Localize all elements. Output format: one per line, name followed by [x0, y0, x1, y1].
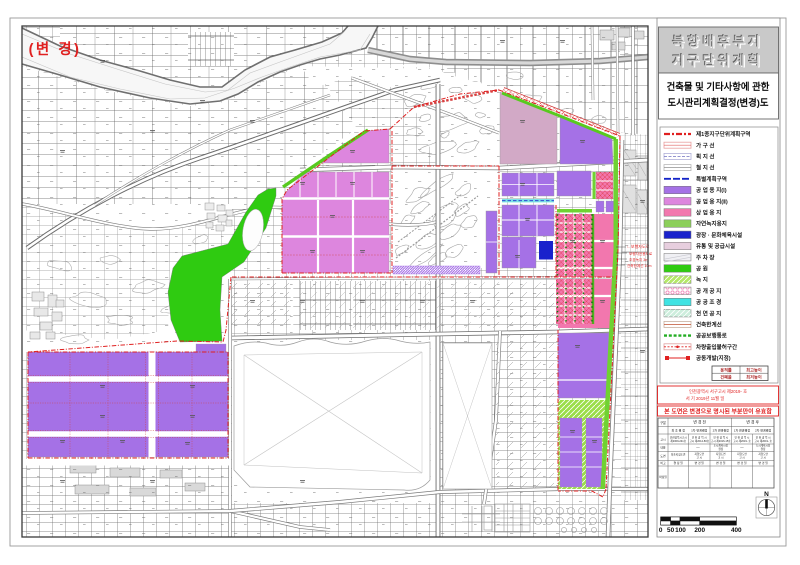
svg-text:비고: 비고	[660, 461, 666, 465]
svg-text:공 개 공 지: 공 개 공 지	[696, 287, 721, 295]
svg-text:인 천 광 역 시: 인 천 광 역 시	[735, 436, 750, 440]
svg-text:2차 변경결정: 2차 변경결정	[713, 427, 730, 432]
svg-text:최저높이: 최저높이	[746, 374, 762, 381]
svg-text:결정: 결정	[718, 447, 723, 451]
svg-text:지구단위계획: 지구단위계획	[672, 53, 763, 68]
svg-text:건폐율: 건폐율	[720, 374, 732, 381]
svg-text:고 시: 고 시	[739, 456, 745, 460]
svg-text:결정: 결정	[761, 447, 766, 451]
svg-text:건축물 및 기타사항에 관한: 건축물 및 기타사항에 관한	[667, 81, 770, 92]
svg-text:확정일: 확정일	[659, 475, 667, 479]
svg-text:변 경 일: 변 경 일	[737, 461, 747, 465]
svg-text:공 업 용 지(Ⅱ): 공 업 용 지(Ⅱ)	[696, 197, 728, 205]
svg-text:보행자전용도로: 보행자전용도로	[629, 251, 653, 256]
svg-text:공 원: 공 원	[696, 265, 708, 273]
svg-text:지형도면: 지형도면	[694, 452, 704, 456]
svg-text:50: 50	[667, 527, 675, 534]
svg-text:고시: 고시	[660, 438, 666, 442]
svg-text:차량출입불허구간: 차량출입불허구간	[696, 343, 738, 351]
svg-text:제2009-241호: 제2009-241호	[670, 439, 686, 443]
svg-text:용적률: 용적률	[720, 367, 732, 374]
svg-text:제1종지구단위계획구역: 제1종지구단위계획구역	[696, 130, 751, 138]
svg-text:서 기 2019년 11월 일: 서 기 2019년 11월 일	[686, 395, 725, 402]
svg-text:고 시: 고 시	[718, 456, 724, 460]
svg-text:최 초 결 정: 최 초 결 정	[671, 427, 685, 432]
svg-text:본 도면은 변경으로 명시된 부분만이 유효함: 본 도면은 변경으로 명시된 부분만이 유효함	[664, 407, 772, 415]
svg-text:변 경 전: 변 경 전	[693, 420, 706, 425]
svg-text:고시 제2016-15호: 고시 제2016-15호	[711, 439, 731, 443]
svg-text:공공보행통로: 공공보행통로	[696, 332, 727, 340]
svg-text:변 경 일: 변 경 일	[759, 461, 769, 465]
svg-text:∟보행자도로: ∟보행자도로	[627, 243, 650, 249]
svg-text:녹 지: 녹 지	[696, 276, 708, 284]
svg-text:변 경 일: 변 경 일	[716, 461, 726, 465]
svg-text:획 지 선: 획 지 선	[696, 153, 715, 161]
svg-text:고시 제2019- 호: 고시 제2019- 호	[754, 439, 772, 443]
svg-text:상 업 용 지: 상 업 용 지	[696, 209, 721, 217]
svg-text:인천광역시 서구고시 제2019- 호: 인천광역시 서구고시 제2019- 호	[689, 388, 747, 395]
svg-text:(변 경): (변 경)	[29, 40, 82, 58]
svg-text:200: 200	[694, 527, 705, 534]
svg-text:고시 제2014-83호: 고시 제2014-83호	[689, 439, 709, 443]
svg-text:도면: 도면	[660, 454, 666, 458]
svg-text:결 정 일: 결 정 일	[674, 461, 684, 465]
svg-text:인 천 광 역 시: 인 천 광 역 시	[756, 436, 771, 440]
svg-text:최고높이: 최고높이	[746, 367, 762, 374]
svg-text:내용: 내용	[660, 446, 666, 450]
svg-text:1차 변경결정: 1차 변경결정	[734, 427, 751, 432]
svg-text:북항배후부지: 북항배후부지	[672, 34, 763, 49]
svg-text:유통 및 공급시설: 유통 및 공급시설	[696, 242, 735, 250]
svg-text:인 천 광 역 시: 인 천 광 역 시	[713, 436, 728, 440]
svg-text:도시계획시설: 도시계획시설	[756, 444, 771, 448]
svg-text:도시관리계획결정(변경)도: 도시관리계획결정(변경)도	[667, 97, 768, 108]
svg-text:구분: 구분	[660, 420, 666, 425]
svg-text:변 경 일: 변 경 일	[695, 461, 705, 465]
svg-text:조경녹지 3m: 조경녹지 3m	[629, 257, 648, 262]
svg-text:도시계획시설: 도시계획시설	[714, 444, 729, 448]
svg-text:인천광역시고시: 인천광역시고시	[670, 436, 687, 440]
svg-text:고 시: 고 시	[760, 456, 766, 460]
svg-text:최초지형도면: 최초지형도면	[671, 453, 686, 457]
svg-text:광장 · 문화체육시설: 광장 · 문화체육시설	[696, 231, 742, 239]
svg-text:1차 변경결정: 1차 변경결정	[691, 427, 708, 432]
svg-text:지형도면: 지형도면	[737, 452, 747, 456]
svg-text:주 차 장: 주 차 장	[696, 253, 715, 261]
svg-text:고 시: 고 시	[697, 456, 703, 460]
svg-text:2차 변경결정: 2차 변경결정	[755, 427, 772, 432]
svg-text:자연녹지용지: 자연녹지용지	[696, 220, 727, 228]
svg-text:공동개발(지정): 공동개발(지정)	[696, 354, 731, 362]
svg-text:고시 제2019- 호: 고시 제2019- 호	[733, 439, 751, 443]
svg-text:0: 0	[659, 527, 663, 534]
svg-text:철 지 선: 철 지 선	[696, 164, 715, 172]
svg-text:400: 400	[731, 527, 742, 534]
svg-text:N: N	[764, 491, 769, 498]
svg-text:공 업 용 지(Ⅰ): 공 업 용 지(Ⅰ)	[696, 186, 727, 194]
svg-text:변 경 후: 변 경 후	[746, 420, 759, 425]
svg-text:100: 100	[675, 527, 686, 534]
svg-text:건축한계선: 건축한계선	[696, 321, 722, 329]
svg-text:인 천 광 역 시: 인 천 광 역 시	[692, 436, 707, 440]
svg-text:지형도면: 지형도면	[716, 452, 726, 456]
svg-text:특별계획구역: 특별계획구역	[696, 175, 727, 183]
svg-text:공 공 조 경: 공 공 조 경	[696, 298, 721, 306]
svg-text:지형도면: 지형도면	[758, 452, 768, 456]
svg-text:가 구 선: 가 구 선	[696, 141, 715, 149]
svg-text:천 연 공 지: 천 연 공 지	[696, 309, 721, 317]
